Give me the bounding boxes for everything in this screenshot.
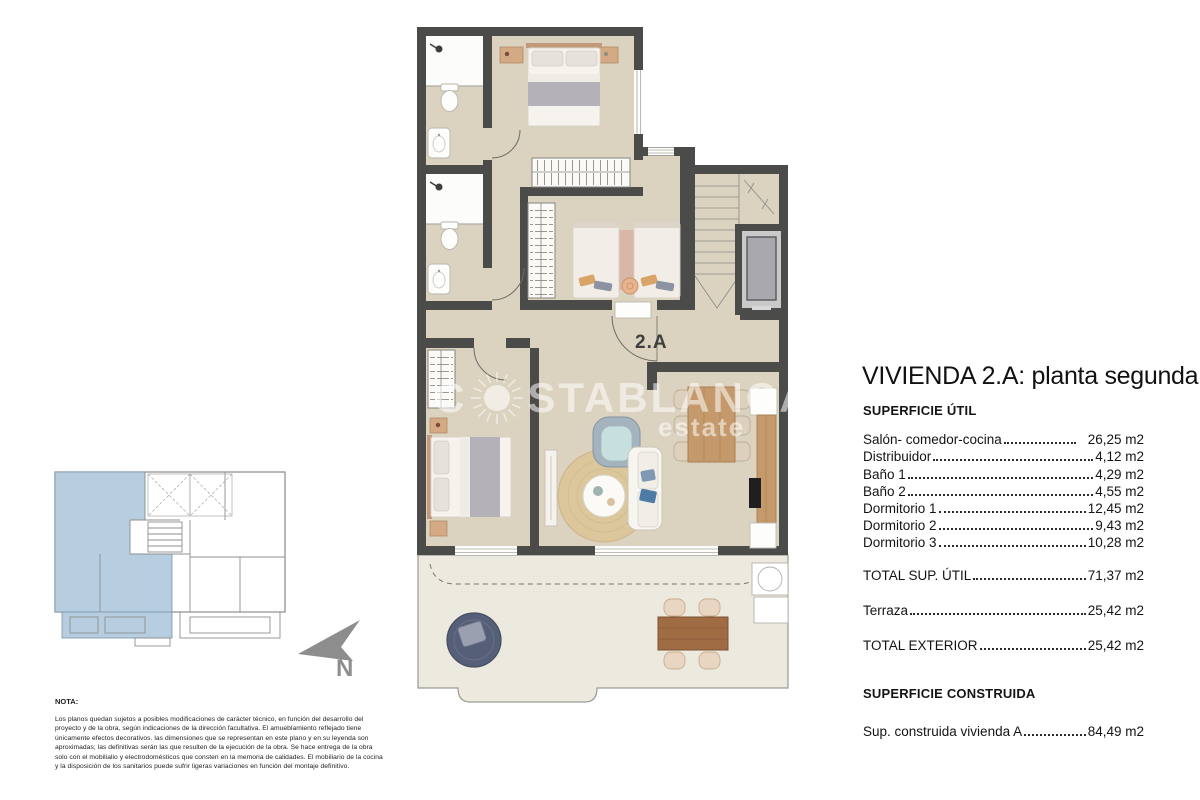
outdoor-table <box>658 617 728 650</box>
sink-icon <box>428 128 450 158</box>
table-row: Dormitorio 2 9,43 m2 <box>863 516 1144 533</box>
superficie-construida-header: SUPERFICIE CONSTRUIDA <box>863 686 1036 701</box>
sink-icon <box>428 264 450 294</box>
specs-panel: VIVIENDA 2.A: planta segunda SUPERFICIE … <box>862 362 1144 762</box>
table-row: Salón- comedor-cocina 26,25 m2 <box>863 430 1144 447</box>
dining-set <box>674 387 750 462</box>
outdoor-sink-unit <box>752 563 788 623</box>
outdoor-chair <box>664 599 685 616</box>
shower-head-icon <box>436 184 443 191</box>
superficie-util-table: Salón- comedor-cocina 26,25 m2 Distribui… <box>863 430 1144 550</box>
outdoor-chair <box>664 652 685 669</box>
toilet-icon <box>441 84 458 112</box>
total-exterior-row: TOTAL EXTERIOR 25,42 m2 <box>863 636 1144 653</box>
shower-2 <box>426 174 483 224</box>
nightstand <box>500 47 523 63</box>
table-row: Distribuidor 4,12 m2 <box>863 447 1144 464</box>
elevator <box>735 224 788 315</box>
outdoor-chair <box>699 599 720 616</box>
table-row: Dormitorio 1 12,45 m2 <box>863 499 1144 516</box>
cooktop <box>749 478 761 508</box>
table-row: Baño 1 4,29 m2 <box>863 464 1144 481</box>
north-arrow: N <box>298 620 360 680</box>
shower-head-icon <box>436 46 443 53</box>
total-util-row: TOTAL SUP. ÚTIL 71,37 m2 <box>863 566 1144 583</box>
construida-row: Sup. construida vivienda A 84,49 m2 <box>863 722 1144 739</box>
shower-1 <box>426 36 483 86</box>
floorplan-page: 2.A C STABLANCA estate <box>0 0 1200 800</box>
sofa <box>628 447 662 530</box>
toilet-icon <box>441 222 458 250</box>
dining-table <box>688 387 735 462</box>
nota-body: Los planos quedan sujetos a posibles mod… <box>55 715 385 771</box>
key-plan: N <box>40 462 380 680</box>
unit-label: 2.A <box>635 332 668 353</box>
table-row: Dormitorio 3 10,28 m2 <box>863 533 1144 550</box>
coffee-table <box>583 475 625 517</box>
table-row: Baño 2 4,55 m2 <box>863 482 1144 499</box>
nightstand <box>430 521 447 536</box>
superficie-util-header: SUPERFICIE ÚTIL <box>863 403 977 418</box>
floorplan-drawing: 2.A <box>408 18 793 710</box>
outdoor-chair <box>699 652 720 669</box>
keyplan-highlight-terrace <box>62 612 172 638</box>
nota-header: NOTA: <box>55 697 385 706</box>
north-label: N <box>336 655 353 680</box>
nota-section: NOTA: Los planos quedan sujetos a posibl… <box>55 697 385 771</box>
round-stool <box>622 278 638 294</box>
bed-headboard <box>526 43 602 48</box>
page-title: VIVIENDA 2.A: planta segunda <box>862 362 1198 391</box>
terraza-row: Terraza 25,42 m2 <box>863 601 1144 618</box>
